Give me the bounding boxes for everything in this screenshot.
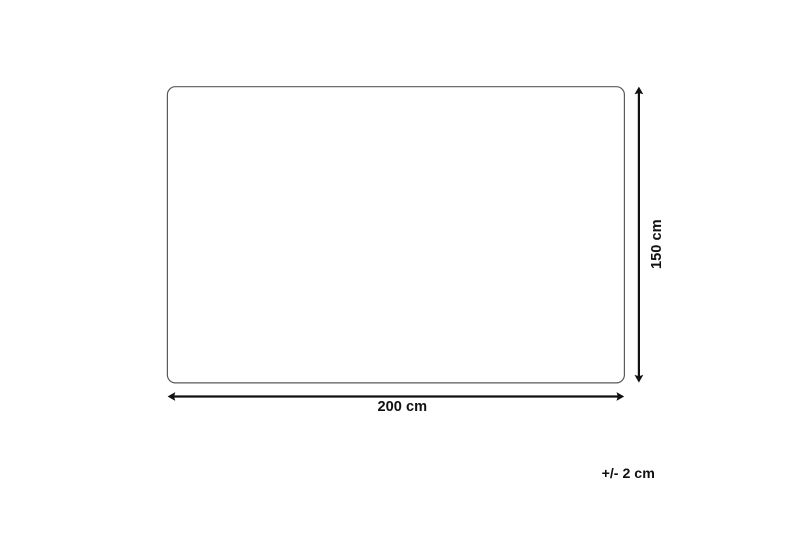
svg-text:+/- 2 cm: +/- 2 cm bbox=[602, 466, 655, 482]
svg-text:150 cm: 150 cm bbox=[649, 219, 665, 269]
svg-text:200 cm: 200 cm bbox=[378, 399, 428, 415]
